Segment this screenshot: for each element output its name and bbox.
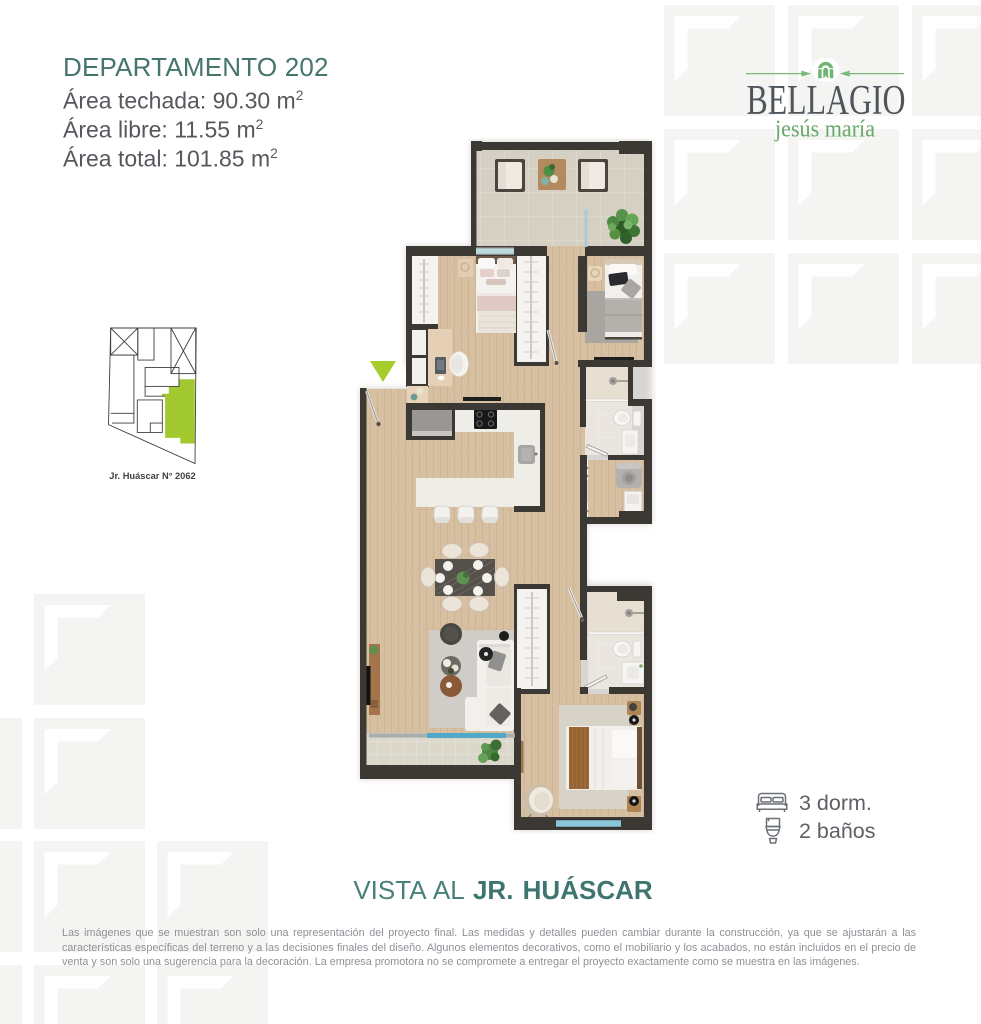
svg-text:jesús maría: jesús maría — [774, 117, 875, 143]
